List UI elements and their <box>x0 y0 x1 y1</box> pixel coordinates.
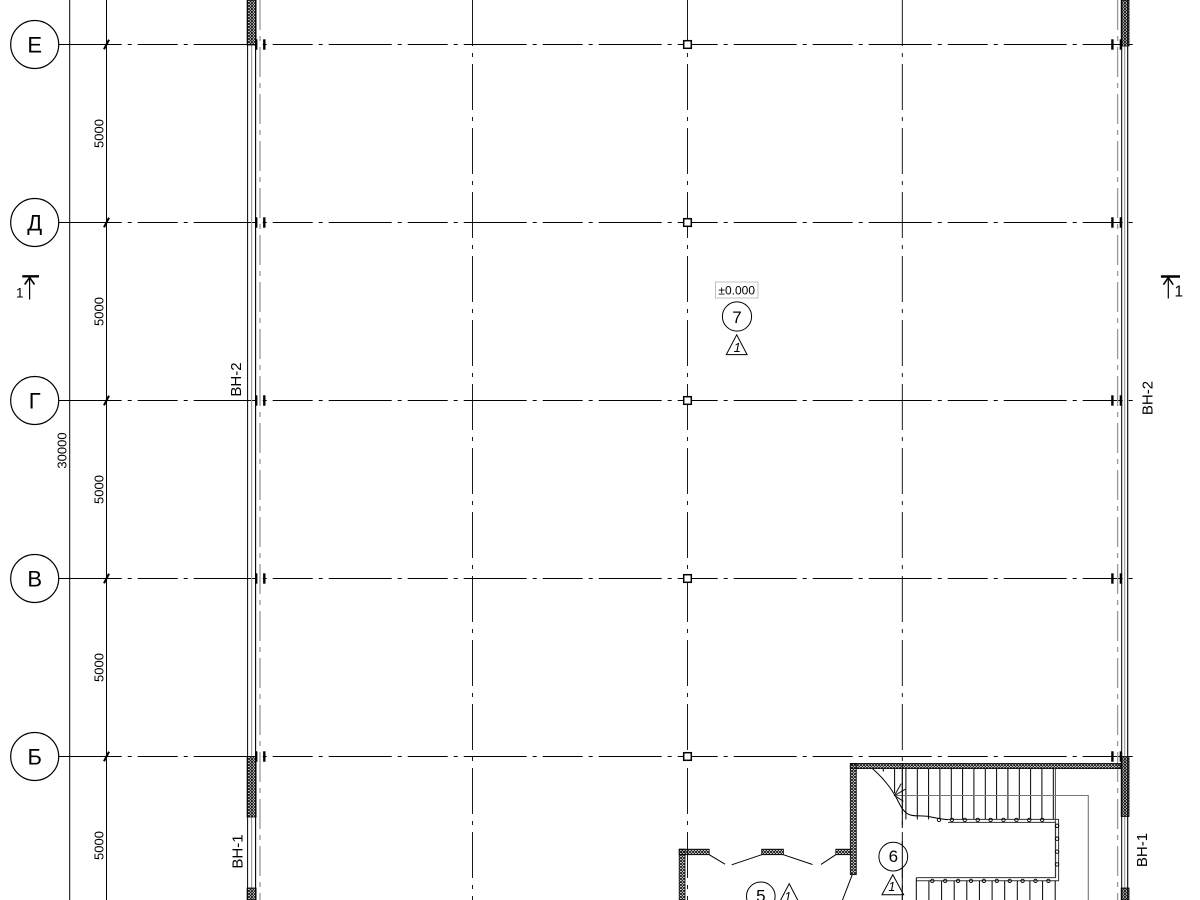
svg-text:ВН-1: ВН-1 <box>1134 833 1151 867</box>
svg-text:30000: 30000 <box>55 432 70 468</box>
svg-text:В: В <box>27 566 42 591</box>
svg-text:5000: 5000 <box>91 475 106 504</box>
svg-text:1: 1 <box>734 340 741 355</box>
svg-text:1: 1 <box>784 890 791 900</box>
svg-text:Б: Б <box>27 744 41 769</box>
svg-text:ВН-2: ВН-2 <box>228 362 245 396</box>
svg-text:±0.000: ±0.000 <box>718 283 755 297</box>
svg-text:1: 1 <box>1175 284 1184 301</box>
svg-text:Г: Г <box>29 388 41 413</box>
svg-text:5000: 5000 <box>91 653 106 682</box>
svg-text:5000: 5000 <box>91 297 106 326</box>
svg-text:ВН-1: ВН-1 <box>230 834 247 868</box>
svg-text:ВН-2: ВН-2 <box>1140 381 1157 415</box>
svg-text:5000: 5000 <box>91 119 106 148</box>
svg-text:5000: 5000 <box>91 831 106 860</box>
svg-text:Д: Д <box>27 210 42 235</box>
svg-text:1: 1 <box>16 286 24 301</box>
svg-text:6: 6 <box>889 847 898 866</box>
svg-text:Е: Е <box>27 32 42 57</box>
svg-text:7: 7 <box>732 308 741 327</box>
svg-text:5: 5 <box>756 887 765 900</box>
svg-text:1: 1 <box>888 880 895 894</box>
